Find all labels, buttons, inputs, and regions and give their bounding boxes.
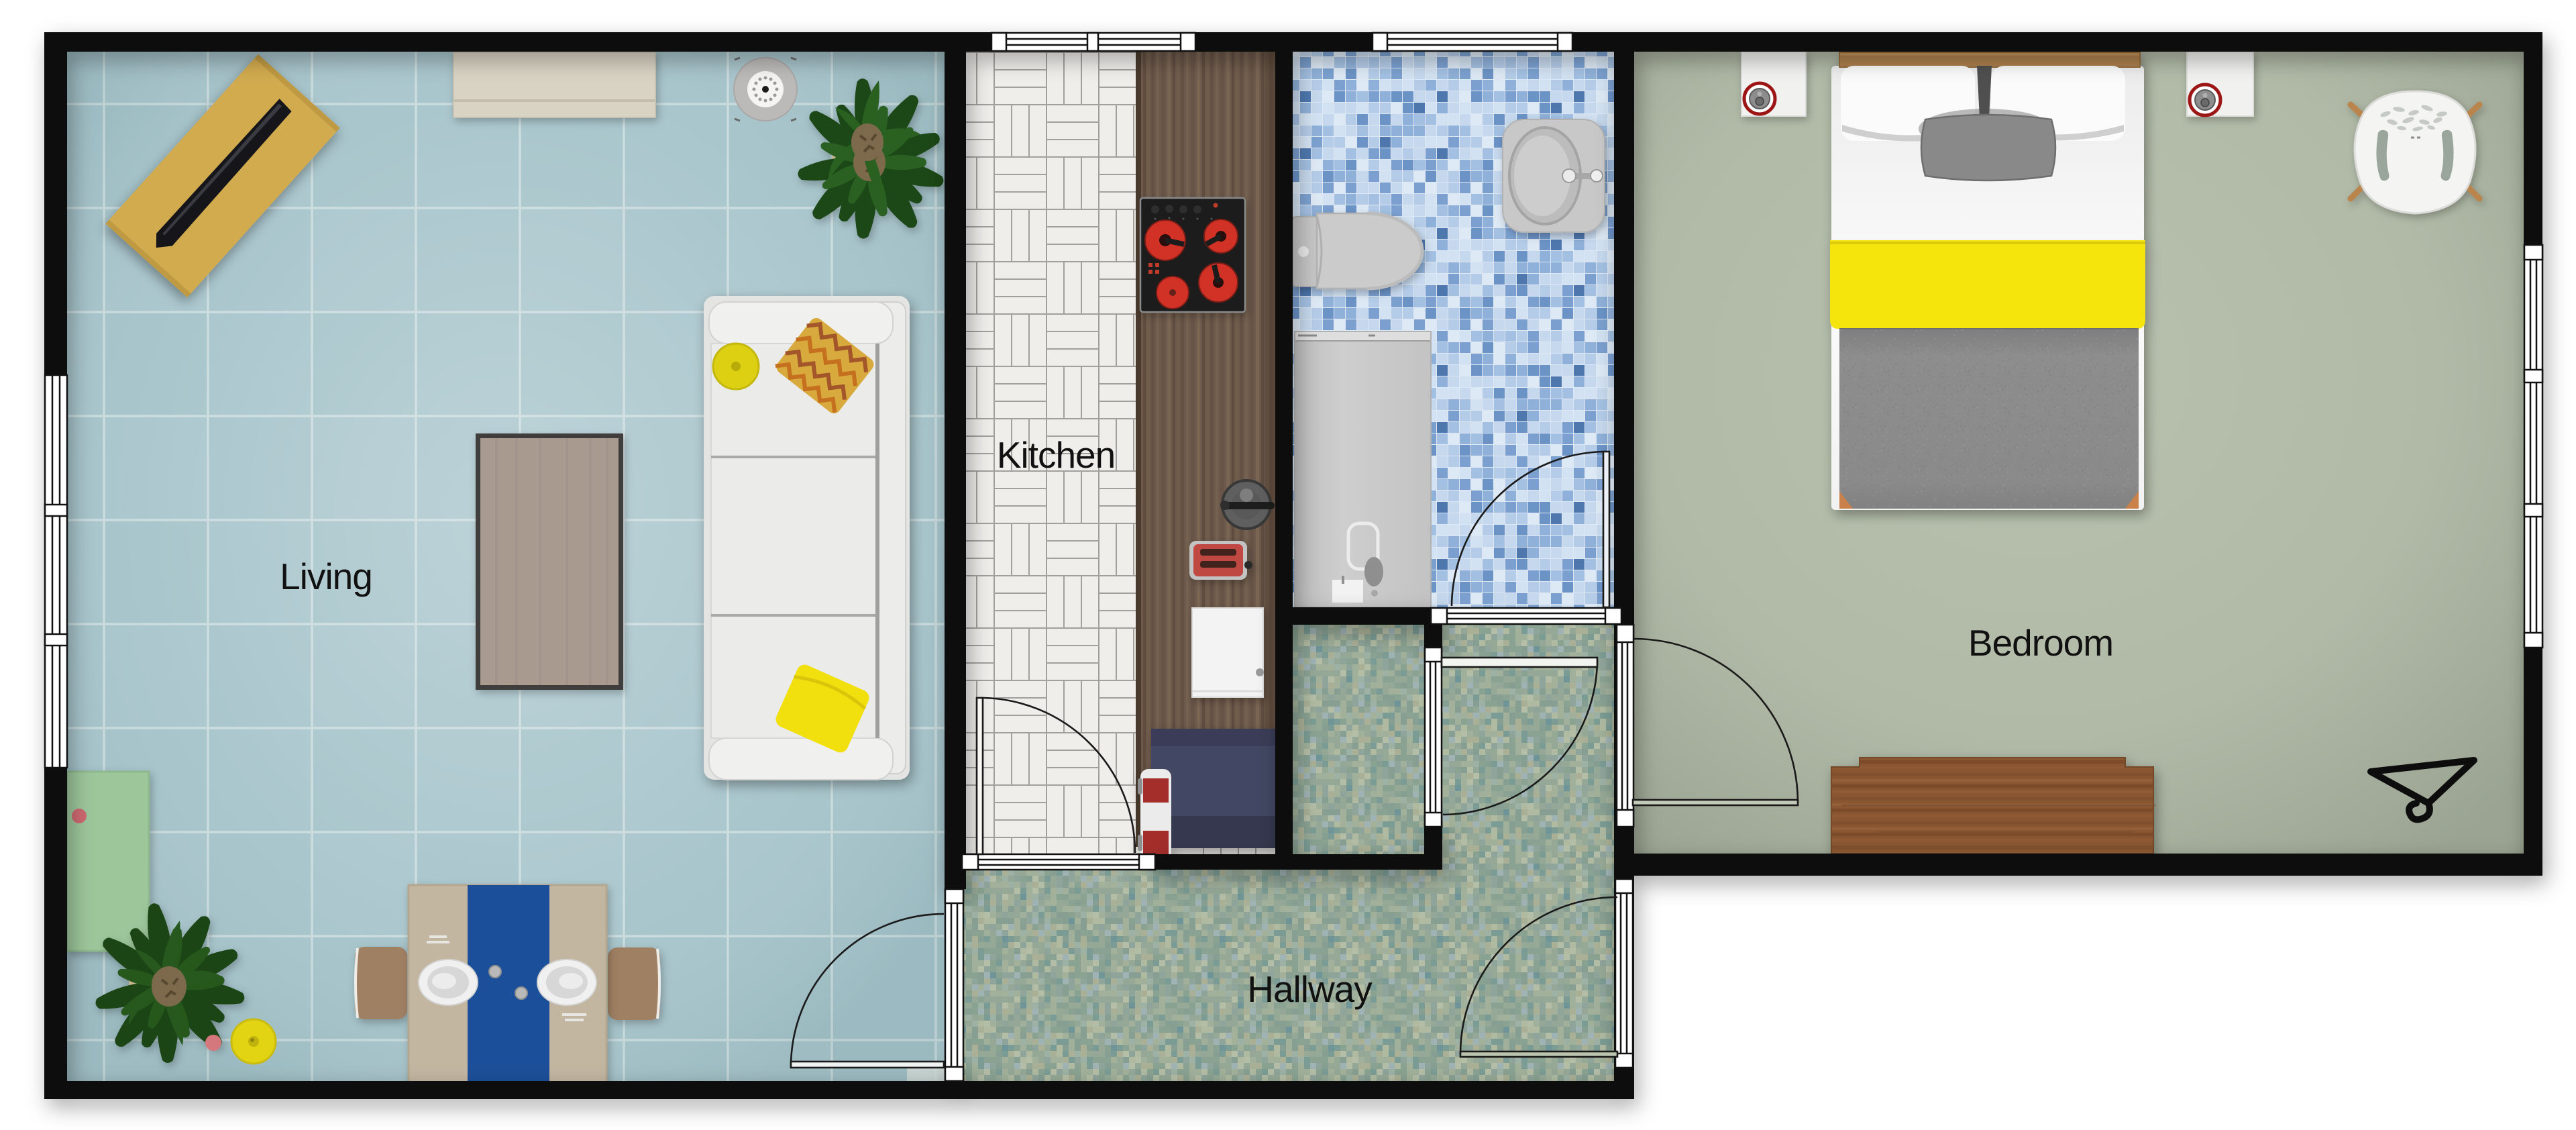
svg-text:Hallway: Hallway xyxy=(1247,968,1373,1010)
svg-text:Kitchen: Kitchen xyxy=(997,434,1115,476)
svg-text:Living: Living xyxy=(280,556,372,597)
svg-text:Bedroom: Bedroom xyxy=(1968,622,2113,664)
